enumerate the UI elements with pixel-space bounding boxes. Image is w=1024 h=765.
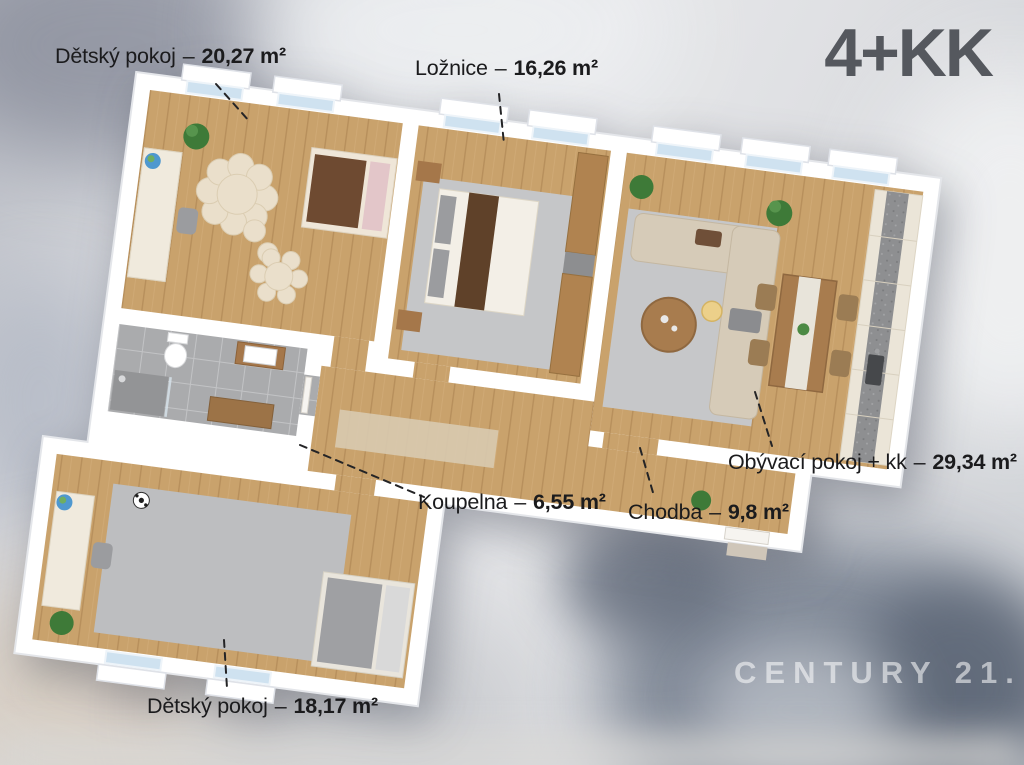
floor-plan-image: Dětský pokoj–20,27 m² Ložnice–16,26 m² O…: [0, 0, 1024, 765]
room-name: Obývací pokoj + kk: [728, 450, 907, 474]
leader-lines: [0, 0, 1024, 765]
room-area: 29,34 m²: [932, 450, 1016, 474]
room-area: 16,26 m²: [513, 56, 597, 80]
label-separator: –: [709, 500, 721, 524]
leader-line-living: [755, 392, 772, 446]
leader-line-child2: [224, 640, 227, 688]
label-separator: –: [514, 490, 526, 514]
leader-line-hallway: [640, 448, 654, 496]
room-name: Chodba: [628, 500, 702, 524]
room-label-koupelna: Koupelna–6,55 m²: [418, 490, 606, 515]
room-label-loznice: Ložnice–16,26 m²: [415, 56, 598, 81]
leader-line-bathroom: [300, 445, 424, 497]
room-label-obyvaci-pokoj: Obývací pokoj + kk–29,34 m²: [728, 450, 1017, 475]
room-name: Koupelna: [418, 490, 507, 514]
room-label-detsky-pokoj-2: Dětský pokoj–18,17 m²: [147, 694, 378, 719]
room-name: Dětský pokoj: [55, 44, 176, 68]
room-label-detsky-pokoj-1: Dětský pokoj–20,27 m²: [55, 44, 286, 69]
room-area: 6,55 m²: [533, 490, 606, 514]
room-name: Dětský pokoj: [147, 694, 268, 718]
label-separator: –: [495, 56, 507, 80]
label-separator: –: [183, 44, 195, 68]
layout-type-title: 4+KK: [824, 14, 992, 92]
room-area: 9,8 m²: [728, 500, 789, 524]
room-area: 20,27 m²: [201, 44, 285, 68]
room-area: 18,17 m²: [293, 694, 377, 718]
leader-line-child1: [216, 84, 250, 122]
label-separator: –: [275, 694, 287, 718]
leader-line-bedroom: [499, 94, 504, 144]
century21-watermark: CENTURY 21.: [734, 655, 1022, 691]
room-name: Ložnice: [415, 56, 488, 80]
label-separator: –: [914, 450, 926, 474]
room-label-chodba: Chodba–9,8 m²: [628, 500, 789, 525]
